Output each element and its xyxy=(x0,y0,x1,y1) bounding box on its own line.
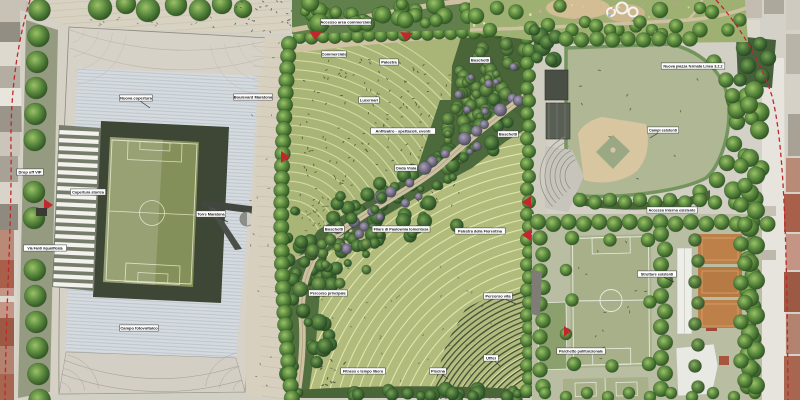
svg-text:Strutture esistenti: Strutture esistenti xyxy=(641,273,674,277)
svg-text:Percorso principale: Percorso principale xyxy=(310,292,345,296)
svg-text:Copertura storica: Copertura storica xyxy=(72,191,105,195)
svg-text:Commerciale: Commerciale xyxy=(321,52,347,57)
svg-text:Anfiteatro - spettacoli, event: Anfiteatro - spettacoli, eventi xyxy=(376,129,431,134)
svg-text:Via Fanti riqualificata: Via Fanti riqualificata xyxy=(27,247,62,251)
svg-text:Lucernari: Lucernari xyxy=(360,98,378,103)
svg-text:Uffici: Uffici xyxy=(486,356,496,361)
svg-text:Campo fotovoltaico: Campo fotovoltaico xyxy=(120,326,158,331)
svg-text:Drop off VIP: Drop off VIP xyxy=(18,170,41,175)
svg-text:Palestra della Fiorentina: Palestra della Fiorentina xyxy=(458,230,503,234)
svg-text:Boulevard Maratona: Boulevard Maratona xyxy=(234,95,273,100)
svg-text:Percorso vita: Percorso vita xyxy=(485,294,511,299)
svg-text:Campi esistenti: Campi esistenti xyxy=(649,129,677,133)
svg-text:Piscina: Piscina xyxy=(431,369,446,374)
svg-text:Boschetti: Boschetti xyxy=(471,58,489,63)
svg-text:Palestra: Palestra xyxy=(381,60,397,65)
svg-text:Fitness e tempo libero: Fitness e tempo libero xyxy=(343,370,384,374)
svg-text:Parchetto polifunzionale: Parchetto polifunzionale xyxy=(559,350,603,354)
svg-text:Torre Maratona: Torre Maratona xyxy=(197,213,225,217)
svg-text:Nuova piazza fermata Linea 3.2: Nuova piazza fermata Linea 3.2.2 xyxy=(663,65,722,69)
svg-text:Nuova copertura: Nuova copertura xyxy=(120,96,153,101)
svg-text:Accesso interno esistente: Accesso interno esistente xyxy=(648,209,695,213)
svg-text:Boschetti: Boschetti xyxy=(325,227,343,232)
svg-text:Boschetti: Boschetti xyxy=(499,132,517,137)
svg-text:Filare di Paulownia tomentosa: Filare di Paulownia tomentosa xyxy=(374,228,430,232)
svg-text:Onda Viola: Onda Viola xyxy=(396,166,418,171)
svg-text:Accesso area commerciale: Accesso area commerciale xyxy=(320,20,372,25)
